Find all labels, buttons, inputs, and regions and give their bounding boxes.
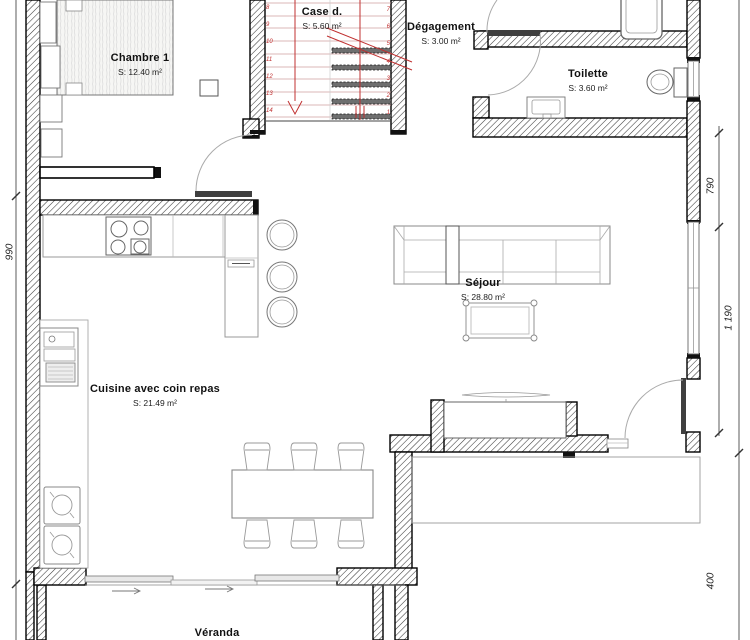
wc-toilet — [647, 68, 687, 97]
chambre-door-leaf — [195, 191, 252, 197]
stair-step-number: 2 — [382, 88, 390, 105]
bar-stools — [267, 220, 297, 327]
east-door-leaf — [681, 378, 686, 434]
wall-left-outer — [26, 0, 40, 572]
stair-numbers-right: 7654321 — [382, 2, 390, 122]
tv-console — [444, 393, 566, 439]
room-name: Chambre 1 — [111, 52, 170, 64]
room-name: Toilette — [568, 68, 608, 80]
column — [446, 226, 459, 284]
stair-step-number: 1 — [382, 105, 390, 122]
room-label-degagement: Dégagement S: 3.00 m² — [407, 21, 475, 46]
wall-veranda-strip-a — [373, 585, 383, 640]
slide-direction-arrow — [205, 586, 233, 592]
wall-coinrepas-east — [395, 452, 412, 569]
dimension-left: 990 — [5, 244, 16, 261]
slide-direction-arrow — [112, 588, 140, 594]
wall-right-door-block — [686, 432, 700, 452]
sliding-panel — [255, 575, 339, 581]
east-door-arc — [625, 380, 683, 438]
stair-step-number: 7 — [382, 2, 390, 19]
stair-step-number: 11 — [266, 52, 273, 69]
dimension-right-bottom: 400 — [706, 573, 717, 590]
wall-toilette-stub-bottom — [473, 97, 489, 118]
wall-tv-niche-left-stub — [431, 400, 444, 452]
room-area: S: 12.40 m² — [111, 67, 170, 77]
chambre-door-arc — [196, 135, 252, 191]
floor-plan: Chambre 1 S: 12.40 m² Case d. S: 5.60 m²… — [0, 0, 750, 640]
door-threshold — [607, 439, 628, 448]
bathroom-door-leaf — [487, 30, 540, 36]
dining-table — [232, 470, 373, 518]
wall-toilette-stub-top — [474, 31, 488, 49]
room-name: Case d. — [302, 6, 343, 18]
room-area: S: 21.49 m² — [90, 398, 220, 408]
dining-set — [232, 443, 373, 548]
toilette-fixtures — [527, 0, 687, 118]
room-label-veranda: Véranda — [195, 627, 240, 639]
room-label-sejour: Séjour S: 28.80 m² — [461, 277, 505, 302]
room-label-toilette: Toilette S: 3.60 m² — [568, 68, 608, 93]
stair-step-number: 13 — [266, 86, 273, 103]
room-label-case-descalier: Case d. S: 5.60 m² — [302, 6, 343, 31]
stair-step-number: 6 — [382, 19, 390, 36]
tv-icon — [462, 393, 550, 398]
stair-step-number: 10 — [266, 34, 273, 51]
bathroom-door-arc — [487, 0, 497, 33]
room-area: S: 28.80 m² — [461, 292, 505, 302]
stair-down-arrow — [288, 101, 302, 114]
shower-tray — [621, 0, 662, 39]
bedroom-furniture — [40, 0, 218, 157]
nightstand — [200, 80, 218, 96]
stair-numbers-left: 891011121314 — [266, 0, 273, 120]
room-name: Véranda — [195, 627, 240, 639]
wall-kitchen-top — [40, 200, 258, 215]
washing-machines — [44, 487, 80, 564]
dimension-lines — [12, 0, 743, 640]
dimension-right-top: 790 — [706, 178, 717, 195]
kitchen-sink — [40, 328, 78, 386]
wall-stair-left — [250, 0, 265, 134]
wall-right-lower — [687, 358, 700, 379]
room-area: S: 5.60 m² — [302, 21, 343, 31]
terrace-outline — [412, 457, 700, 523]
room-area: S: 3.00 m² — [407, 36, 475, 46]
stair-step-number: 12 — [266, 69, 273, 86]
coffee-table — [463, 300, 537, 341]
wall-chambre-partition — [40, 167, 154, 178]
wall-tv-niche-right-stub — [566, 402, 577, 436]
stair-step-number: 14 — [266, 103, 273, 120]
room-label-chambre1: Chambre 1 S: 12.40 m² — [111, 52, 170, 77]
stair-step-number: 8 — [266, 0, 273, 17]
stair-step-number: 4 — [382, 54, 390, 71]
wall-bottom-mid-corner — [337, 568, 417, 585]
room-label-cuisine: Cuisine avec coin repas S: 21.49 m² — [90, 383, 220, 408]
wall-left-lower-a — [26, 572, 34, 640]
room-name: Cuisine avec coin repas — [90, 383, 220, 395]
dimension-right-middle: 1 190 — [724, 305, 735, 330]
sliding-panel — [85, 576, 173, 582]
room-name: Séjour — [461, 277, 505, 289]
wall-veranda-strip-b — [395, 585, 408, 640]
wall-left-lower-b — [37, 585, 46, 640]
bed — [57, 0, 173, 95]
stove — [106, 217, 151, 255]
stair-step-number: 9 — [266, 17, 273, 34]
wall-toilette-bottom — [473, 118, 687, 137]
floor-plan-drawing — [0, 0, 750, 640]
room-area: S: 3.60 m² — [568, 83, 608, 93]
wall-kitchen-sw-corner — [34, 568, 86, 585]
room-name: Dégagement — [407, 21, 475, 33]
stair-step-number: 3 — [382, 71, 390, 88]
kitchen-peninsula — [225, 215, 258, 337]
stair-step-number: 5 — [382, 36, 390, 53]
sofa — [394, 226, 610, 284]
wall-right-mid — [687, 101, 700, 222]
sliding-panel — [171, 580, 257, 585]
wall-right-upper — [687, 0, 700, 58]
hand-sink — [527, 97, 565, 118]
